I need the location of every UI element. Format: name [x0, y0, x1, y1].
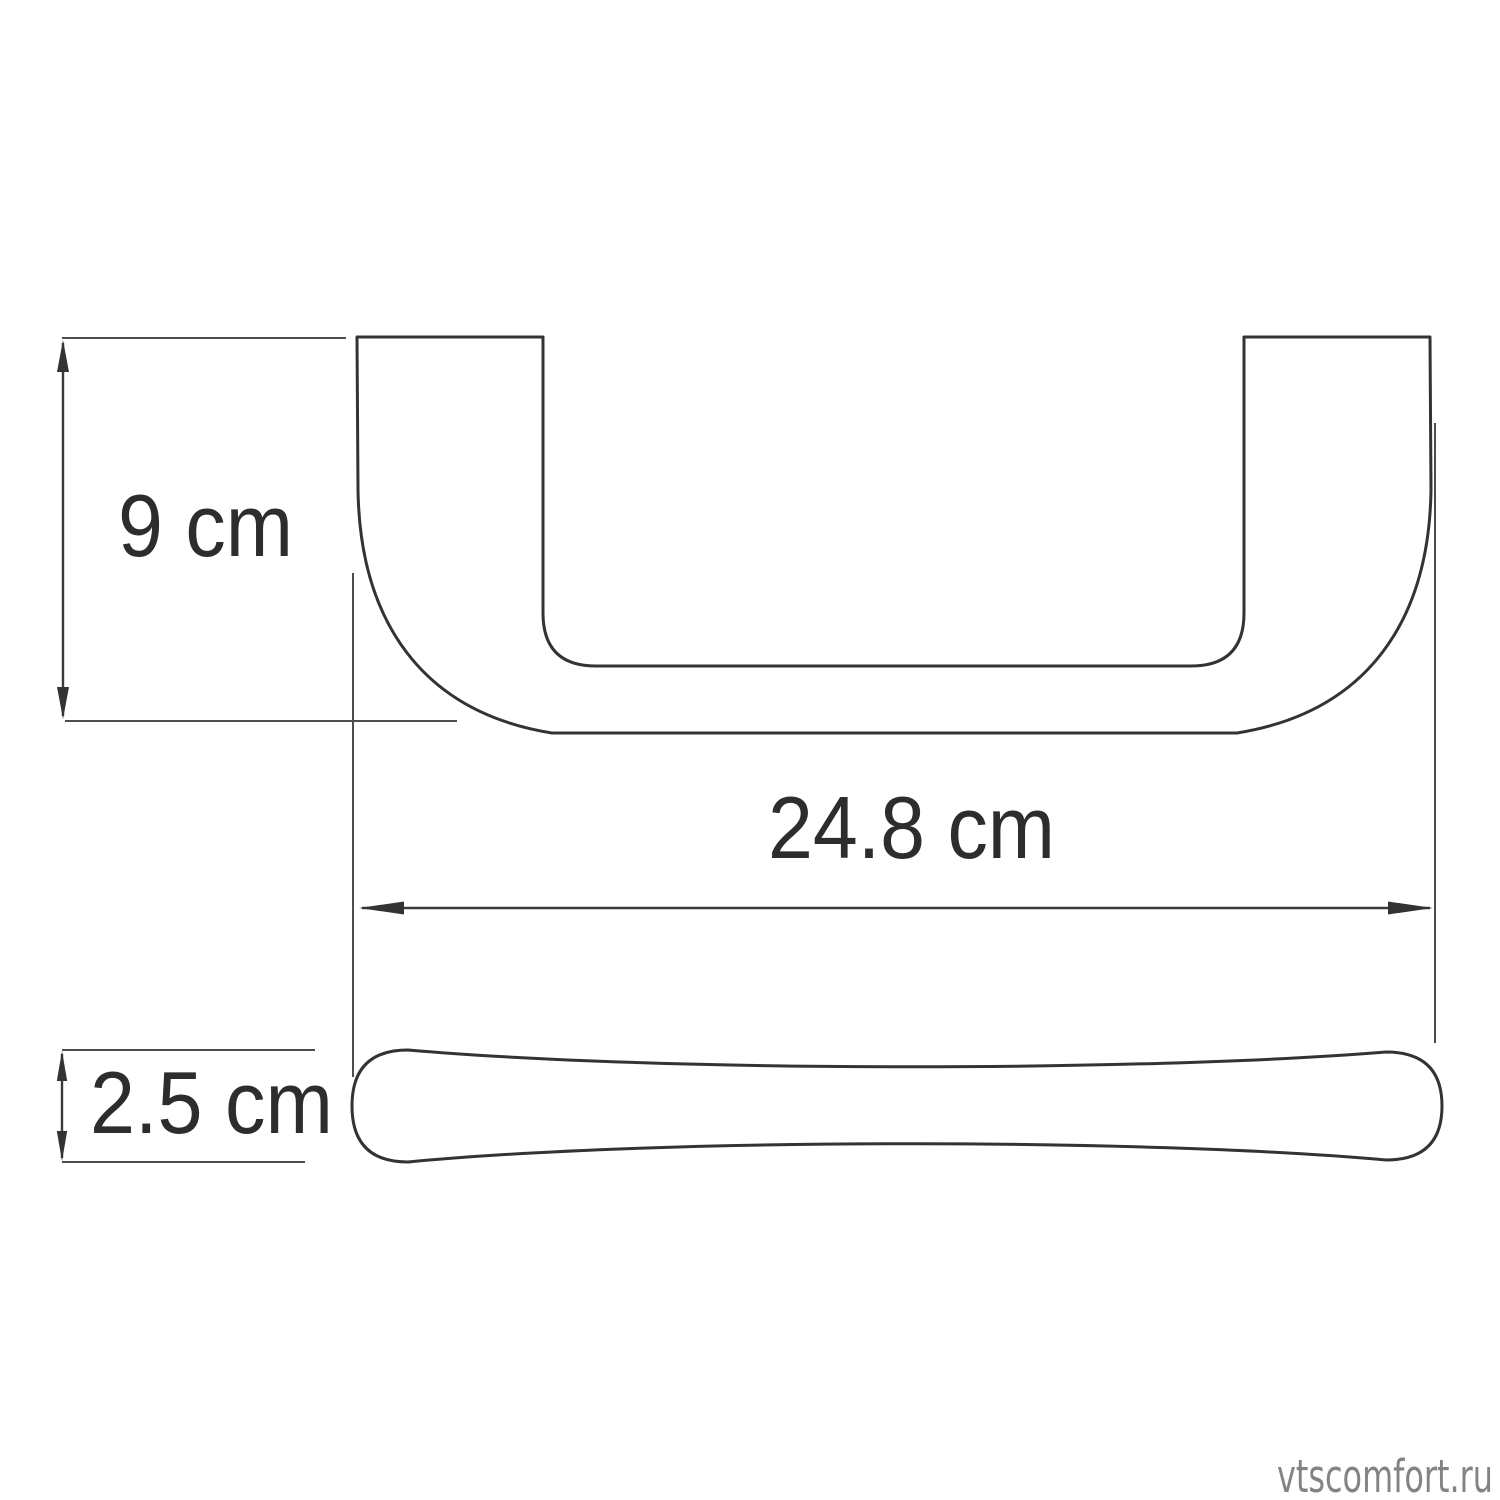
length-dimension-label: 24.8 cm — [768, 778, 1055, 877]
height-dimension-label: 9 cm — [118, 476, 293, 575]
height-arrowhead-up-icon — [57, 340, 69, 372]
handle-front-view — [357, 337, 1431, 733]
dimension-drawing-canvas: 9 cm 24.8 cm 2.5 cm vtscomfort.ru — [0, 0, 1500, 1500]
watermark: vtscomfort.ru — [1277, 1450, 1493, 1500]
handle-side-profile-view — [352, 1050, 1442, 1162]
depth-dimension-label: 2.5 cm — [90, 1053, 333, 1152]
handle-front-view-outline — [357, 337, 1431, 733]
handle-side-profile-outline — [352, 1050, 1442, 1162]
depth-arrowhead-up-icon — [57, 1051, 67, 1081]
length-arrowhead-right-icon — [1388, 902, 1433, 915]
dimension-depth: 2.5 cm — [57, 1050, 333, 1162]
height-arrowhead-down-icon — [57, 687, 69, 719]
depth-arrowhead-down-icon — [57, 1131, 67, 1161]
length-arrowhead-left-icon — [359, 902, 404, 915]
